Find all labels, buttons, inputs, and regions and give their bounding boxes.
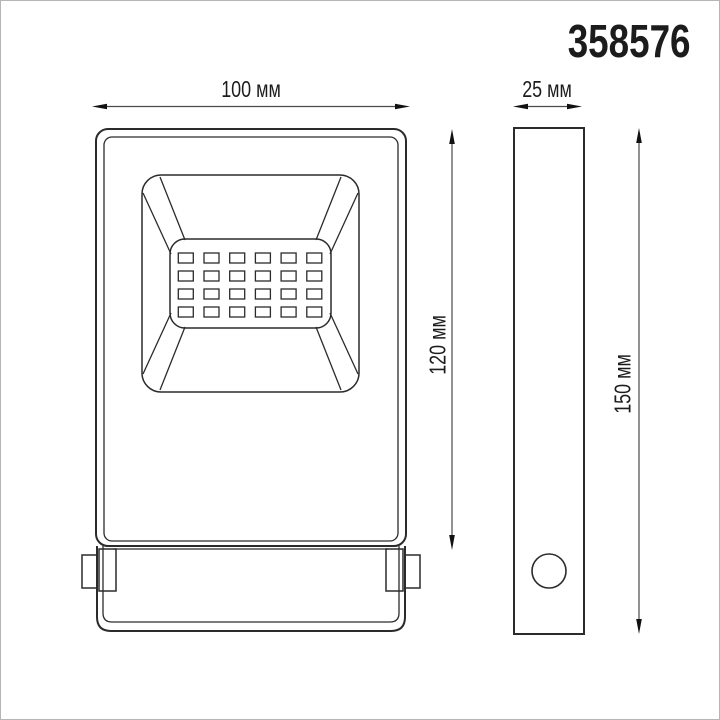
bracket-slot-left [99, 549, 116, 591]
led-chip [255, 271, 270, 281]
reflector [142, 175, 359, 392]
housing-inner-outline [104, 137, 398, 541]
arrowhead-down-icon [636, 619, 642, 634]
front-view [82, 104, 455, 631]
led-chip [204, 253, 219, 263]
dimension-depth-side [513, 104, 582, 110]
led-chip [204, 271, 219, 281]
led-chip [307, 307, 322, 317]
bracket-outline [97, 546, 405, 631]
led-chip [230, 271, 245, 281]
arrowhead-left-icon [513, 104, 528, 110]
arrowhead-down-icon [449, 535, 455, 550]
arrowhead-left-icon [92, 104, 107, 110]
led-chip [178, 289, 193, 299]
arrowhead-up-icon [449, 129, 455, 144]
led-chip [281, 271, 296, 281]
bracket-slot-right [386, 549, 403, 591]
led-chip [255, 289, 270, 299]
dimension-width-front [92, 104, 410, 110]
cable-entry-hole [532, 554, 566, 588]
dimension-height-front [449, 129, 455, 550]
bracket-tab-right [405, 555, 420, 588]
arrowhead-right-icon [567, 104, 582, 110]
bracket-tab-left [82, 555, 97, 588]
reflector-frame [142, 175, 359, 392]
drawing-sheet: 358576 100 мм 25 мм 120 мм 150 мм [0, 0, 720, 720]
led-chip [307, 253, 322, 263]
led-chip [281, 307, 296, 317]
led-chip [281, 253, 296, 263]
led-chip [178, 307, 193, 317]
side-view [513, 104, 642, 634]
led-grid [178, 253, 321, 317]
led-chip [230, 253, 245, 263]
led-chip [307, 271, 322, 281]
led-chip [255, 307, 270, 317]
side-profile-outline [514, 128, 584, 634]
technical-drawing [1, 1, 720, 720]
mounting-bracket [82, 546, 420, 631]
reflector-corner-edges [143, 177, 358, 390]
led-chip [255, 253, 270, 263]
led-chip [281, 289, 296, 299]
dimension-height-side [636, 128, 642, 634]
led-chip [178, 271, 193, 281]
led-chip [204, 289, 219, 299]
arrowhead-right-icon [395, 104, 410, 110]
led-chip [230, 307, 245, 317]
led-chip [204, 307, 219, 317]
arrowhead-up-icon [636, 128, 642, 143]
bracket-inner-line [103, 546, 399, 622]
led-chip [230, 289, 245, 299]
led-chip [178, 253, 193, 263]
led-chip [307, 289, 322, 299]
